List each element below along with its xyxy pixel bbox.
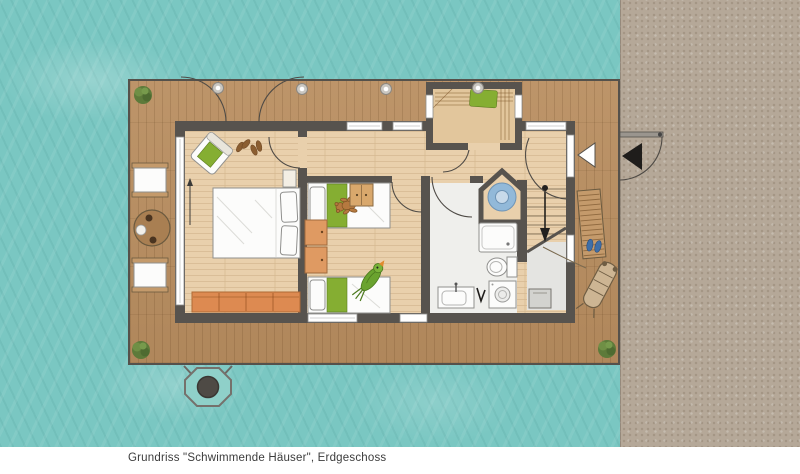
sofa [192,292,300,312]
deck-table [134,210,170,246]
mooring-bollard [198,377,219,398]
hall-dresser [350,184,373,206]
terrace-door-swing-right [259,77,304,122]
kids-wardrobe [305,220,327,273]
utility-equipment [529,289,551,308]
sun-lounger [576,259,620,318]
nightstand [283,170,296,187]
entrance-marker-white-icon [578,143,595,167]
figure-caption: Grundriss "Schwimmende Häuser", Erdgesch… [128,452,386,464]
entrance-door [567,135,574,177]
mooring-platform [184,366,232,406]
entrance-marker-black-icon [622,143,642,170]
bench-mat [577,189,606,259]
shower-tray [479,223,517,252]
deck-chair [132,258,168,292]
toilet [487,257,517,277]
kids-bed-bottom [308,277,390,313]
floorplan-figure: Grundriss "Schwimmende Häuser", Erdgesch… [0,0,800,474]
washing-machine [489,281,516,308]
floorplan-drawing [0,0,800,474]
double-bed [213,188,300,258]
deck-chair [132,163,168,197]
entrance-markers [578,132,663,180]
